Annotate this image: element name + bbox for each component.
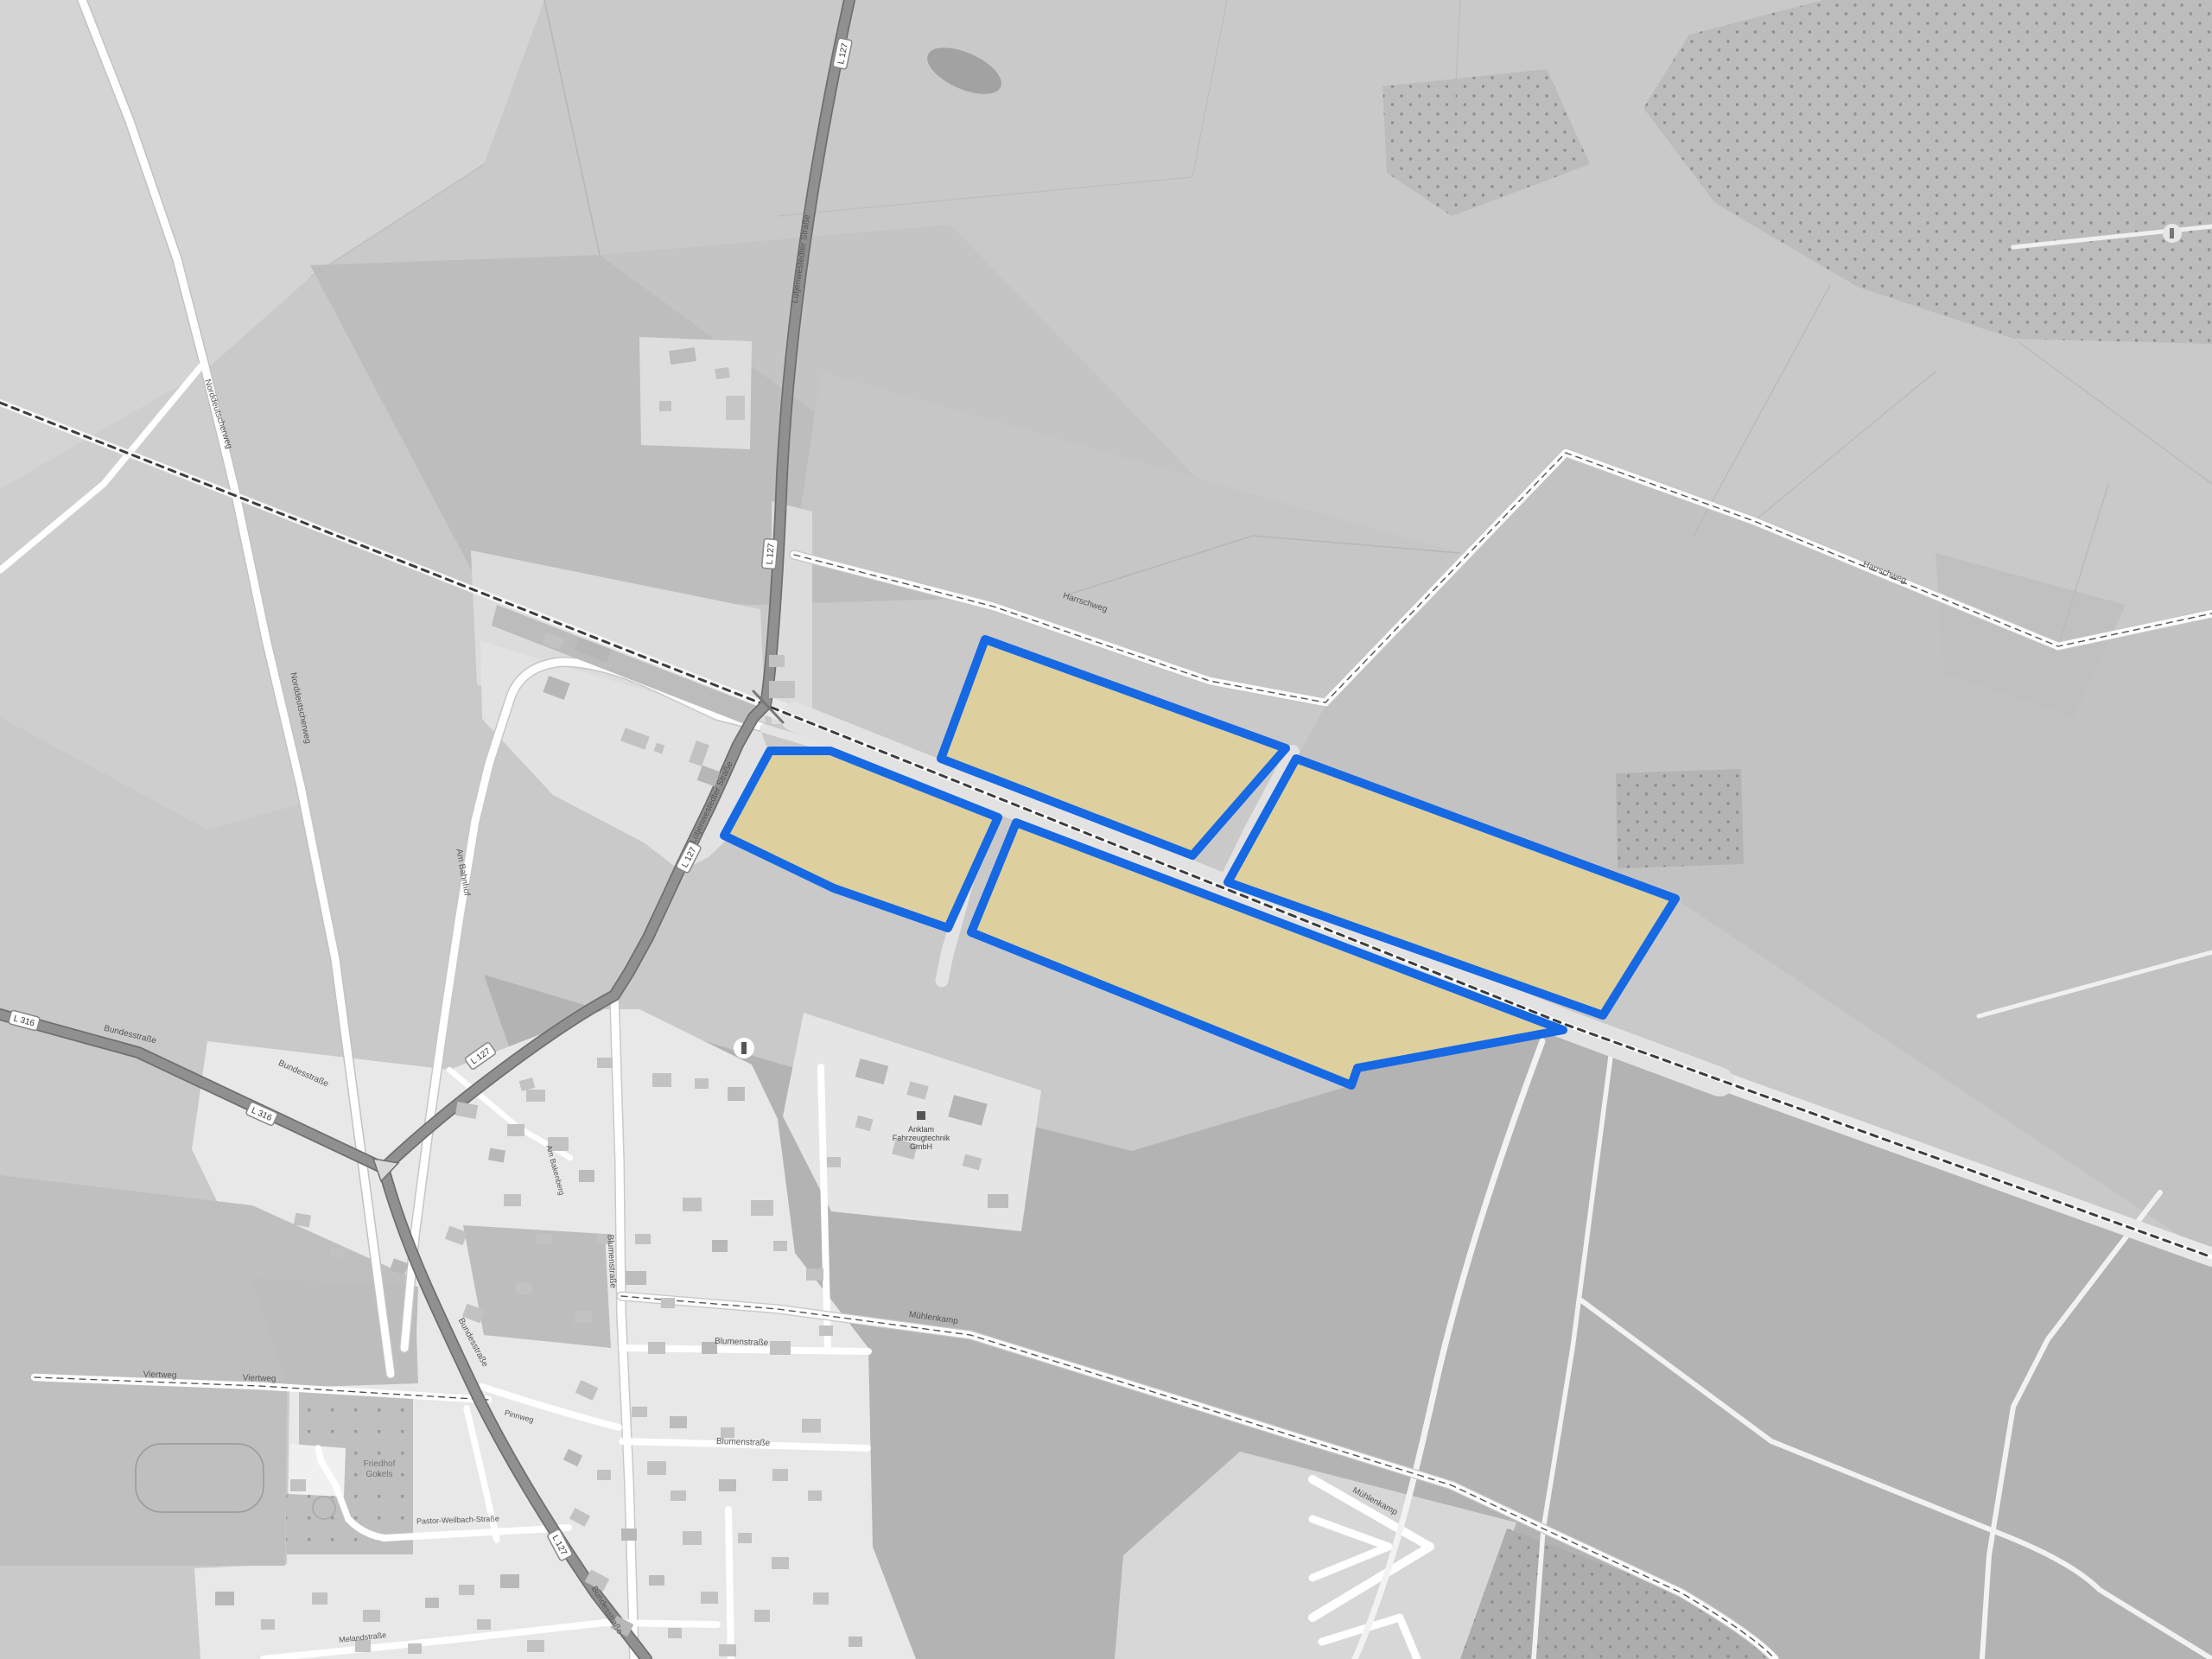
svg-text:Viertweg: Viertweg — [243, 1373, 276, 1383]
svg-text:Viertweg: Viertweg — [143, 1370, 177, 1380]
svg-text:Blumenstraße: Blumenstraße — [715, 1337, 769, 1348]
svg-text:Blumenstraße: Blumenstraße — [716, 1437, 771, 1448]
svg-text:Friedhof: Friedhof — [364, 1459, 396, 1469]
svg-text:Gokels: Gokels — [365, 1470, 392, 1479]
svg-text:L 127: L 127 — [765, 543, 776, 565]
svg-text:GmbH: GmbH — [910, 1142, 932, 1151]
svg-text:Fahrzeugtechnik: Fahrzeugtechnik — [893, 1134, 950, 1142]
svg-text:Anklam: Anklam — [908, 1125, 934, 1134]
